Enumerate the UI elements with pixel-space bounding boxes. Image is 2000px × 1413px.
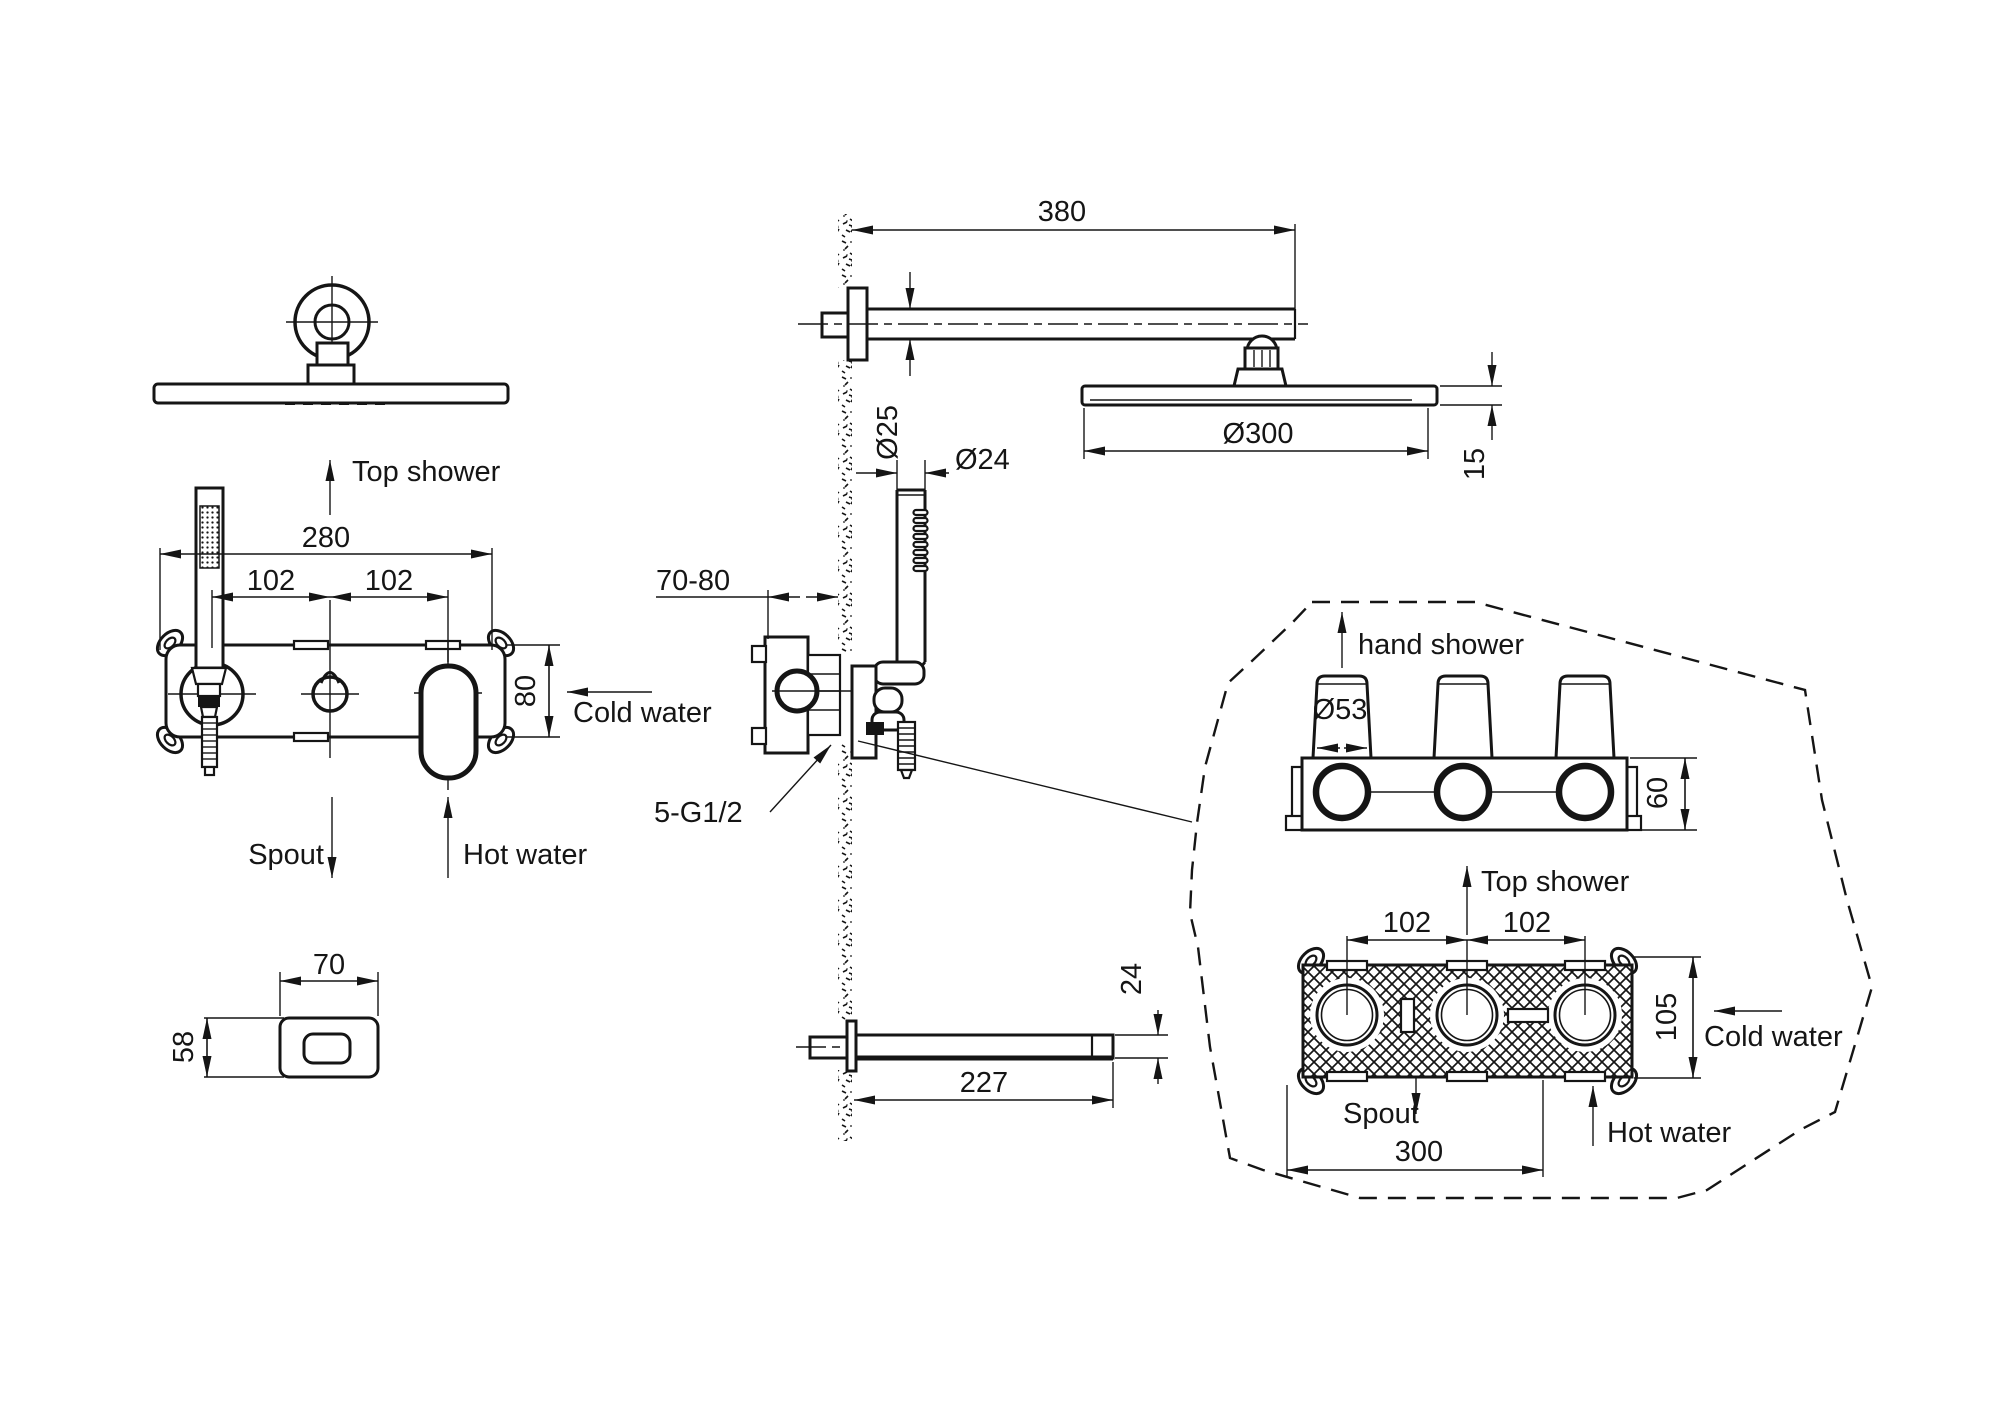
- dim-70-80: 70-80: [656, 565, 838, 639]
- dim-58-text: 58: [168, 1031, 200, 1063]
- dim-380: 380: [852, 196, 1295, 310]
- spout-side: [796, 1021, 1113, 1071]
- shower-arm-side: [798, 288, 1308, 360]
- technical-drawing-page: Top shower: [0, 0, 2000, 1413]
- detail-hand-shower-label: hand shower: [1358, 629, 1524, 661]
- dim-280-text: 280: [302, 522, 350, 554]
- detail-cold-water-label: Cold water: [1704, 1021, 1843, 1053]
- shower-head-side: [1082, 336, 1437, 405]
- dim-d24-text: Ø24: [955, 444, 1010, 476]
- spout-front-view: 70 58: [168, 949, 378, 1077]
- detail-bubble: hand shower Ø53 60: [1190, 602, 1872, 1198]
- dim-227-text: 227: [960, 1067, 1008, 1099]
- detail-top-shower-label: Top shower: [1481, 866, 1630, 898]
- front-top-shower-label: Top shower: [352, 456, 501, 488]
- dim-60-text: 60: [1642, 777, 1674, 809]
- detail-bubble-outline: [1190, 602, 1872, 1198]
- hand-shower-side: Ø24: [856, 444, 1010, 672]
- thread-spec-text: 5-G1/2: [654, 797, 743, 829]
- dim-300-text: 300: [1395, 1136, 1443, 1168]
- front-view: Top shower: [153, 456, 712, 878]
- detail-spout-label: Spout: [1343, 1098, 1419, 1130]
- dim-70-80-text: 70-80: [656, 565, 730, 597]
- dim-d53-text: Ø53: [1313, 694, 1368, 726]
- dim-d300-text: Ø300: [1223, 418, 1294, 450]
- front-hot-water-label: Hot water: [463, 839, 587, 871]
- dim-102-left-text: 102: [247, 565, 295, 597]
- dim-24: 24: [1115, 963, 1168, 1084]
- dim-15: 15: [1440, 352, 1502, 480]
- shower-head-top-view: [154, 276, 508, 404]
- detail-leader-line: [858, 741, 1192, 822]
- dim-d25: Ø25: [872, 272, 910, 460]
- dim-80-text: 80: [510, 675, 542, 707]
- dim-105-text: 105: [1651, 993, 1683, 1041]
- dim-80: 80: [507, 645, 560, 737]
- dim-227: 227: [854, 1062, 1113, 1108]
- detail-dim-102-right-text: 102: [1503, 907, 1551, 939]
- dim-15-text: 15: [1459, 448, 1491, 480]
- dim-380-text: 380: [1038, 196, 1086, 228]
- detail-dim-102-left-text: 102: [1383, 907, 1431, 939]
- dim-d25-text: Ø25: [872, 405, 904, 460]
- front-spout-label: Spout: [248, 839, 324, 871]
- dim-70-text: 70: [313, 949, 345, 981]
- front-cold-water-label: Cold water: [573, 697, 712, 729]
- dim-24-text: 24: [1116, 963, 1148, 995]
- dim-105: 105: [1634, 957, 1701, 1078]
- dim-102-right-text: 102: [365, 565, 413, 597]
- dim-d300: Ø300: [1084, 408, 1428, 459]
- detail-hot-water-label: Hot water: [1607, 1117, 1731, 1149]
- thread-spec-callout: 5-G1/2: [654, 745, 831, 829]
- shower-system-dimension-drawing: Top shower: [0, 0, 2000, 1413]
